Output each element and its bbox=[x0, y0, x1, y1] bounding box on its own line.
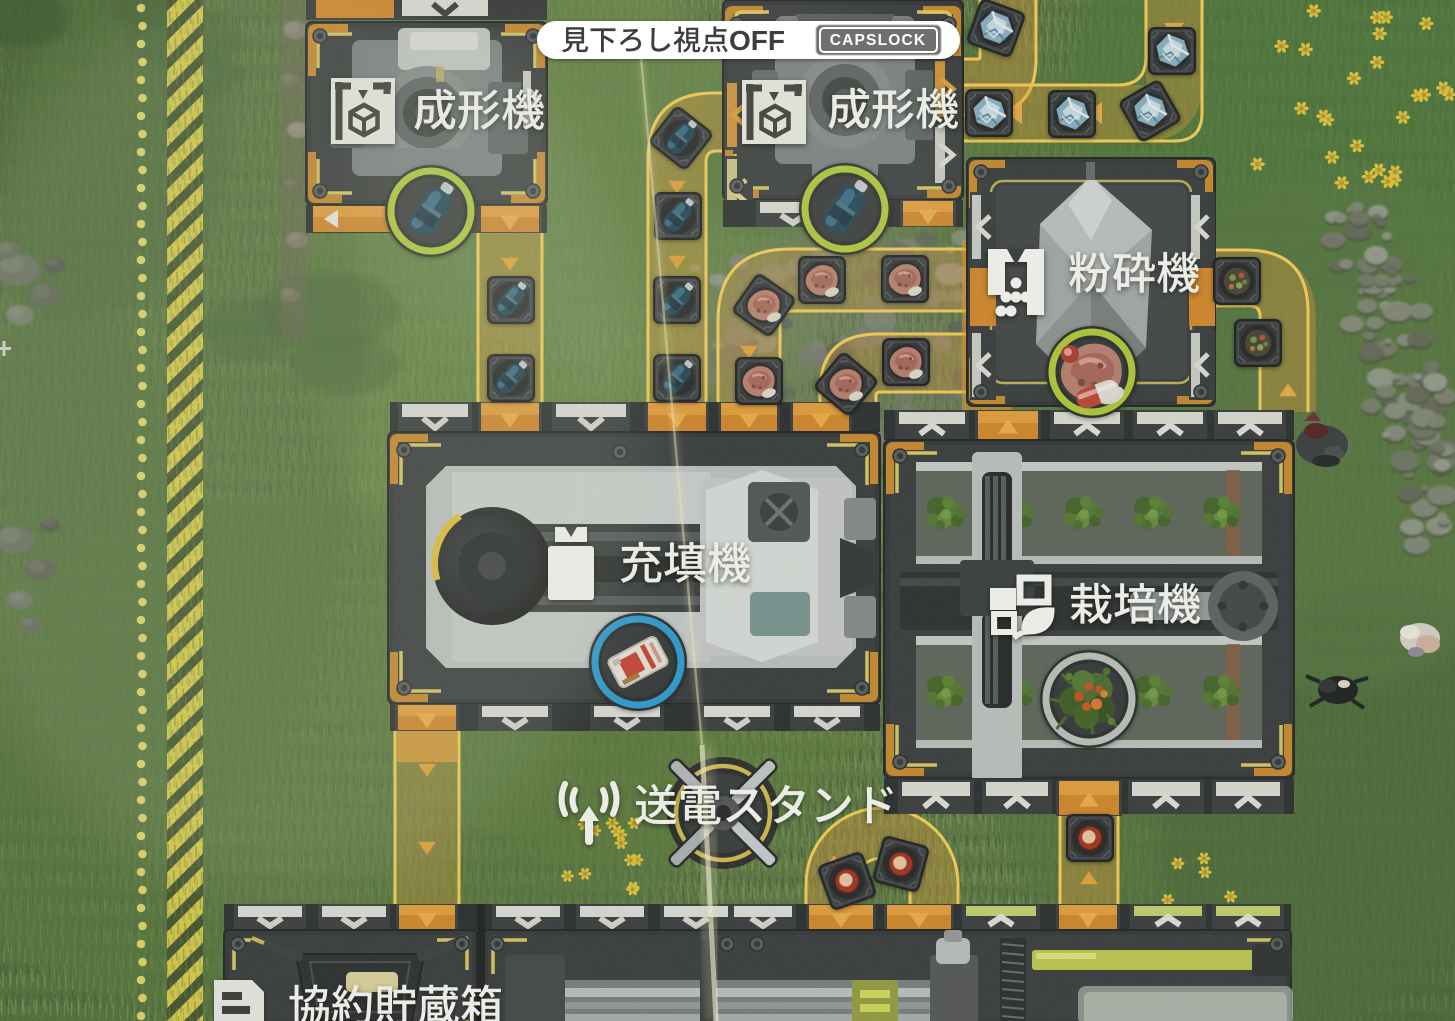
svg-text:CAPSLOCK: CAPSLOCK bbox=[830, 32, 927, 49]
svg-text:OFF: OFF bbox=[729, 25, 785, 56]
